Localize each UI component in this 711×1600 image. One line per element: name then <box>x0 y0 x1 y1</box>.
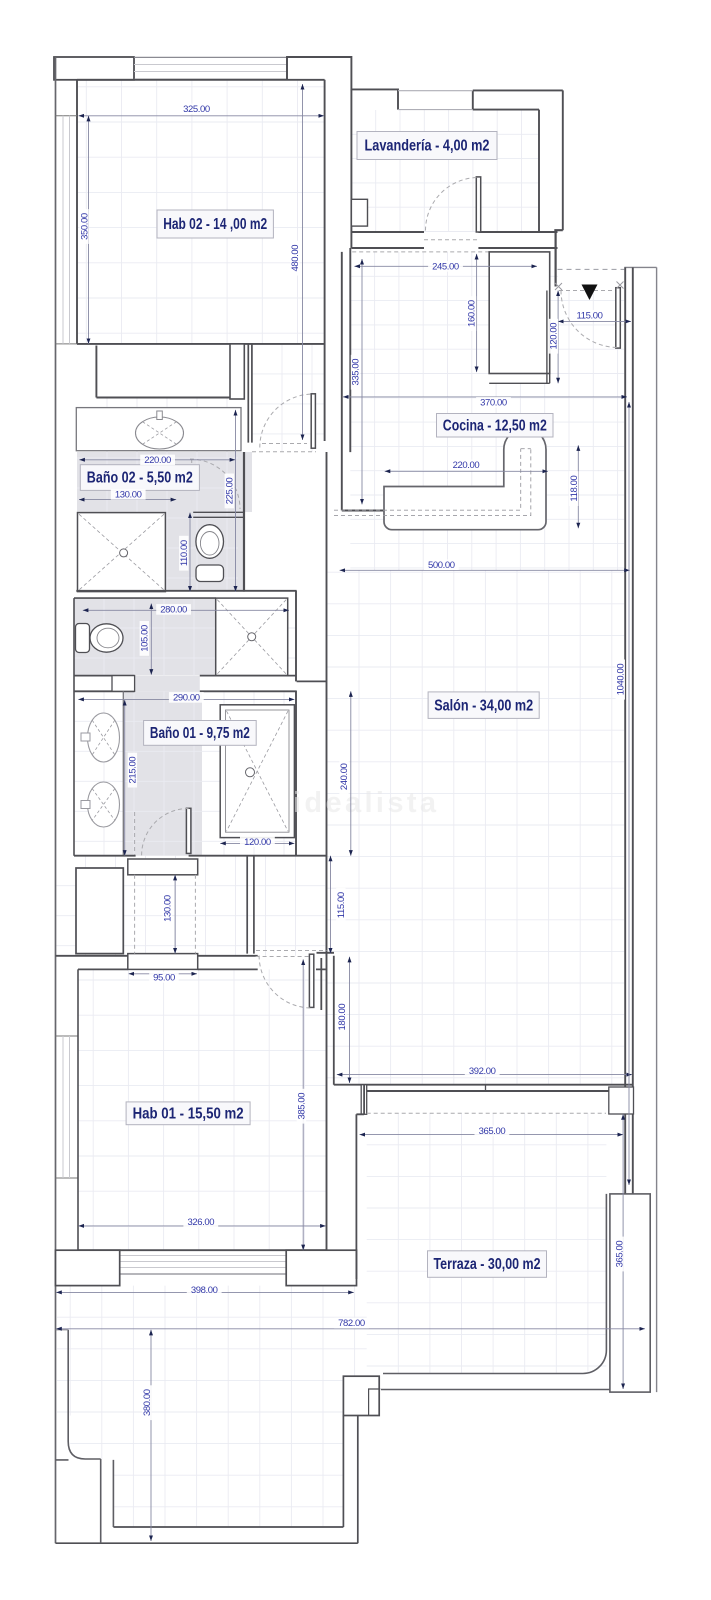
svg-text:Hab 01 - 15,50 m2: Hab 01 - 15,50 m2 <box>133 1106 244 1123</box>
svg-text:335.00: 335.00 <box>351 359 362 386</box>
svg-text:105.00: 105.00 <box>140 625 151 652</box>
svg-text:120.00: 120.00 <box>549 323 560 350</box>
svg-text:385.00: 385.00 <box>297 1093 308 1120</box>
svg-text:350.00: 350.00 <box>79 213 90 240</box>
svg-text:220.00: 220.00 <box>144 455 171 466</box>
svg-text:398.00: 398.00 <box>191 1285 218 1296</box>
svg-text:326.00: 326.00 <box>187 1217 214 1228</box>
svg-text:130.00: 130.00 <box>163 895 174 922</box>
svg-text:115.00: 115.00 <box>336 892 347 918</box>
svg-text:370.00: 370.00 <box>480 398 507 409</box>
svg-text:160.00: 160.00 <box>467 300 478 327</box>
svg-text:115.00: 115.00 <box>577 310 603 321</box>
svg-text:245.00: 245.00 <box>432 262 459 273</box>
svg-text:500.00: 500.00 <box>428 560 455 571</box>
svg-text:782.00: 782.00 <box>338 1318 365 1329</box>
svg-text:325.00: 325.00 <box>183 104 210 115</box>
svg-text:Cocina - 12,50 m2: Cocina - 12,50 m2 <box>443 417 547 434</box>
svg-text:95.00: 95.00 <box>153 973 175 984</box>
svg-text:290.00: 290.00 <box>173 693 200 704</box>
svg-text:225.00: 225.00 <box>225 477 236 504</box>
svg-text:Salón - 34,00 m2: Salón - 34,00 m2 <box>434 697 533 714</box>
svg-text:365.00: 365.00 <box>479 1126 506 1137</box>
svg-text:392.00: 392.00 <box>469 1066 496 1077</box>
svg-text:480.00: 480.00 <box>290 245 301 272</box>
svg-text:idealista: idealista <box>293 787 439 819</box>
svg-text:130.00: 130.00 <box>115 490 142 501</box>
svg-text:Baño 02 - 5,50 m2: Baño 02 - 5,50 m2 <box>87 470 193 487</box>
svg-text:220.00: 220.00 <box>453 460 480 471</box>
svg-text:Terraza - 30,00 m2: Terraza - 30,00 m2 <box>434 1256 541 1273</box>
svg-text:365.00: 365.00 <box>614 1241 625 1268</box>
svg-text:110.00: 110.00 <box>179 540 190 566</box>
svg-text:280.00: 280.00 <box>160 605 187 616</box>
svg-text:120.00: 120.00 <box>244 837 271 848</box>
svg-text:180.00: 180.00 <box>337 1004 348 1031</box>
svg-text:Baño 01 - 9,75 m2: Baño 01 - 9,75 m2 <box>150 725 250 742</box>
svg-text:Lavandería - 4,00 m2: Lavandería - 4,00 m2 <box>365 138 490 155</box>
svg-text:380.00: 380.00 <box>142 1389 153 1416</box>
svg-text:1040.00: 1040.00 <box>616 664 627 696</box>
svg-text:240.00: 240.00 <box>339 763 350 790</box>
svg-text:215.00: 215.00 <box>128 757 139 784</box>
svg-text:118.00: 118.00 <box>569 476 580 502</box>
svg-text:Hab 02 - 14 ,00 m2: Hab 02 - 14 ,00 m2 <box>163 216 267 233</box>
